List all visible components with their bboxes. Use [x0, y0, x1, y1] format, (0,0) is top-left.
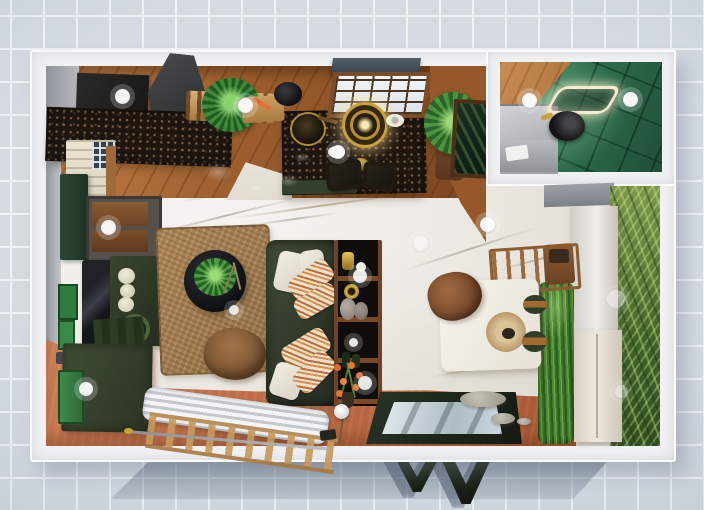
light-marker[interactable] — [480, 217, 495, 232]
light-marker[interactable] — [331, 145, 345, 159]
light-marker[interactable] — [413, 236, 428, 251]
light-marker[interactable] — [349, 338, 358, 347]
floorplan-scene — [0, 0, 704, 510]
light-markers-layer — [0, 0, 704, 510]
light-marker[interactable] — [229, 305, 239, 315]
light-marker[interactable] — [607, 290, 625, 308]
light-marker[interactable] — [238, 98, 253, 113]
light-marker[interactable] — [358, 376, 372, 390]
light-marker[interactable] — [101, 220, 116, 235]
light-marker[interactable] — [615, 385, 628, 398]
light-marker[interactable] — [115, 89, 130, 104]
light-marker[interactable] — [353, 269, 367, 283]
light-marker[interactable] — [79, 382, 93, 396]
light-marker[interactable] — [522, 93, 537, 108]
light-marker[interactable] — [623, 92, 638, 107]
